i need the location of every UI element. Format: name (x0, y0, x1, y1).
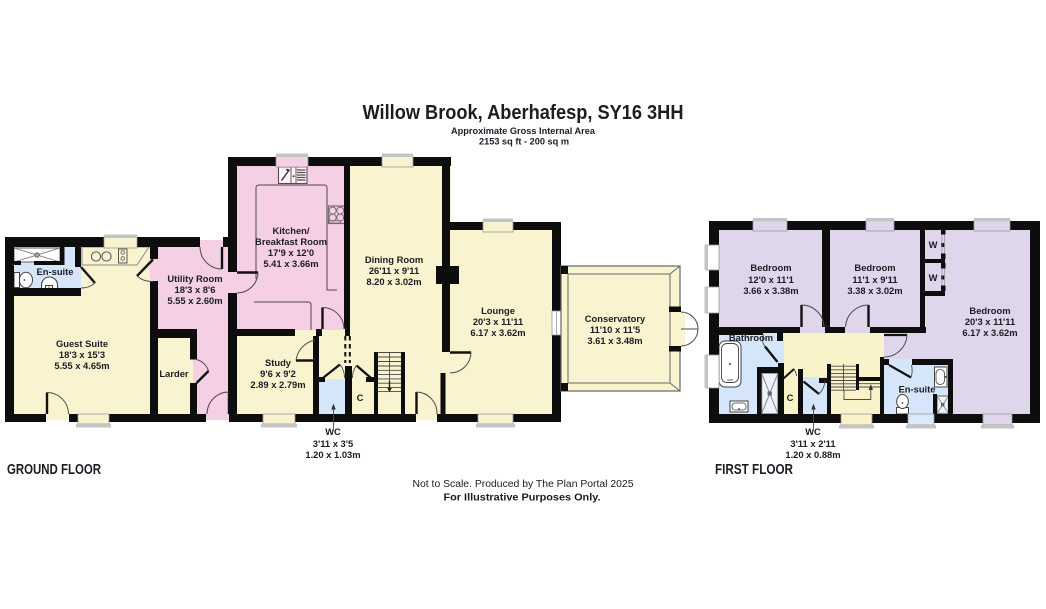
svg-text:6.17 x 3.62m: 6.17 x 3.62m (962, 327, 1017, 338)
svg-text:18'3 x 8'6: 18'3 x 8'6 (175, 284, 216, 295)
svg-text:3'11 x 2'11: 3'11 x 2'11 (790, 438, 835, 449)
svg-text:5.41 x 3.66m: 5.41 x 3.66m (263, 258, 318, 269)
svg-text:W: W (929, 272, 938, 283)
svg-text:Bedroom: Bedroom (969, 305, 1010, 316)
svg-text:WC: WC (805, 426, 821, 437)
svg-text:Utility Room: Utility Room (167, 273, 222, 284)
svg-text:2153 sq ft - 200 sq m: 2153 sq ft - 200 sq m (479, 137, 569, 147)
svg-text:FIRST FLOOR: FIRST FLOOR (715, 462, 793, 478)
svg-text:20'3 x 11'11: 20'3 x 11'11 (965, 316, 1015, 327)
svg-text:Approximate Gross Internal Are: Approximate Gross Internal Area (451, 126, 596, 136)
svg-text:GROUND FLOOR: GROUND FLOOR (7, 462, 101, 478)
svg-text:WC: WC (325, 426, 341, 437)
svg-text:20'3 x 11'11: 20'3 x 11'11 (473, 316, 523, 327)
svg-text:Larder: Larder (159, 368, 189, 379)
svg-text:W: W (929, 239, 938, 250)
svg-text:2.89 x 2.79m: 2.89 x 2.79m (250, 379, 305, 390)
svg-text:8.20 x 3.02m: 8.20 x 3.02m (366, 276, 421, 287)
svg-text:Kitchen/: Kitchen/ (273, 225, 310, 236)
svg-text:5.55 x 4.65m: 5.55 x 4.65m (54, 360, 109, 371)
svg-text:Bedroom: Bedroom (854, 262, 895, 273)
svg-text:Bedroom: Bedroom (750, 262, 791, 273)
svg-text:18'3 x 15'3: 18'3 x 15'3 (59, 349, 105, 360)
svg-text:6.17 x 3.62m: 6.17 x 3.62m (470, 327, 525, 338)
svg-text:Bathroom: Bathroom (729, 332, 773, 343)
svg-text:Conservatory: Conservatory (585, 313, 646, 324)
svg-text:5.55 x 2.60m: 5.55 x 2.60m (167, 295, 222, 306)
svg-text:1.20 x 1.03m: 1.20 x 1.03m (305, 449, 360, 460)
svg-text:9'6 x 9'2: 9'6 x 9'2 (260, 368, 296, 379)
svg-text:3'11 x 3'5: 3'11 x 3'5 (313, 438, 353, 449)
svg-text:En-suite: En-suite (899, 384, 936, 395)
svg-text:En-suite: En-suite (37, 266, 74, 277)
svg-text:Study: Study (265, 357, 292, 368)
svg-text:26'11 x 9'11: 26'11 x 9'11 (369, 265, 419, 276)
svg-text:11'1 x 9'11: 11'1 x 9'11 (852, 274, 897, 285)
svg-text:Not to Scale. Produced by The: Not to Scale. Produced by The Plan Porta… (413, 479, 634, 490)
svg-text:1.20 x 0.88m: 1.20 x 0.88m (785, 449, 840, 460)
svg-text:Guest Suite: Guest Suite (56, 338, 108, 349)
svg-text:Lounge: Lounge (481, 305, 515, 316)
svg-text:C: C (787, 392, 794, 403)
svg-text:17'9 x 12'0: 17'9 x 12'0 (268, 247, 314, 258)
svg-text:Dining Room: Dining Room (365, 254, 423, 265)
svg-text:12'0 x 11'1: 12'0 x 11'1 (748, 274, 794, 285)
svg-text:3.38 x 3.02m: 3.38 x 3.02m (847, 285, 902, 296)
svg-text:11'10 x 11'5: 11'10 x 11'5 (590, 324, 640, 335)
svg-text:Breakfast Room: Breakfast Room (255, 236, 327, 247)
svg-text:C: C (357, 392, 364, 403)
svg-text:For Illustrative Purposes Only: For Illustrative Purposes Only. (444, 492, 601, 504)
svg-text:3.61 x 3.48m: 3.61 x 3.48m (587, 335, 642, 346)
svg-text:Willow Brook, Aberhafesp, SY16: Willow Brook, Aberhafesp, SY16 3HH (363, 102, 684, 124)
svg-text:3.66 x 3.38m: 3.66 x 3.38m (743, 285, 798, 296)
